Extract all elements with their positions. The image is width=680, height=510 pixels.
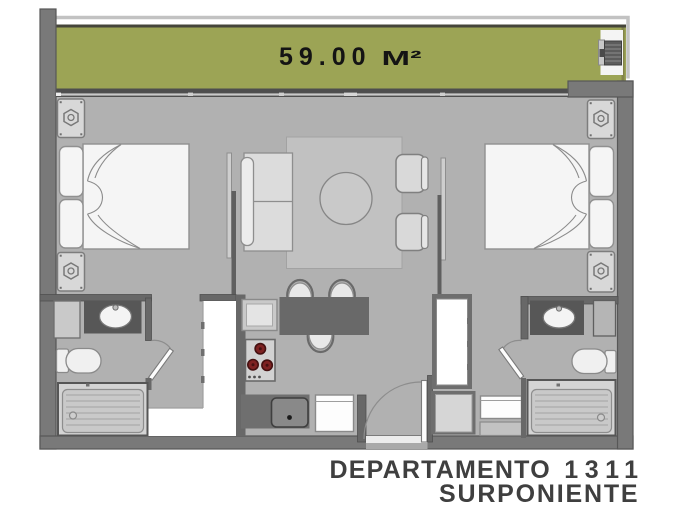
svg-text:SURPONIENTE: SURPONIENTE: [439, 480, 639, 508]
svg-text:59.00 M²: 59.00 M²: [279, 43, 422, 71]
